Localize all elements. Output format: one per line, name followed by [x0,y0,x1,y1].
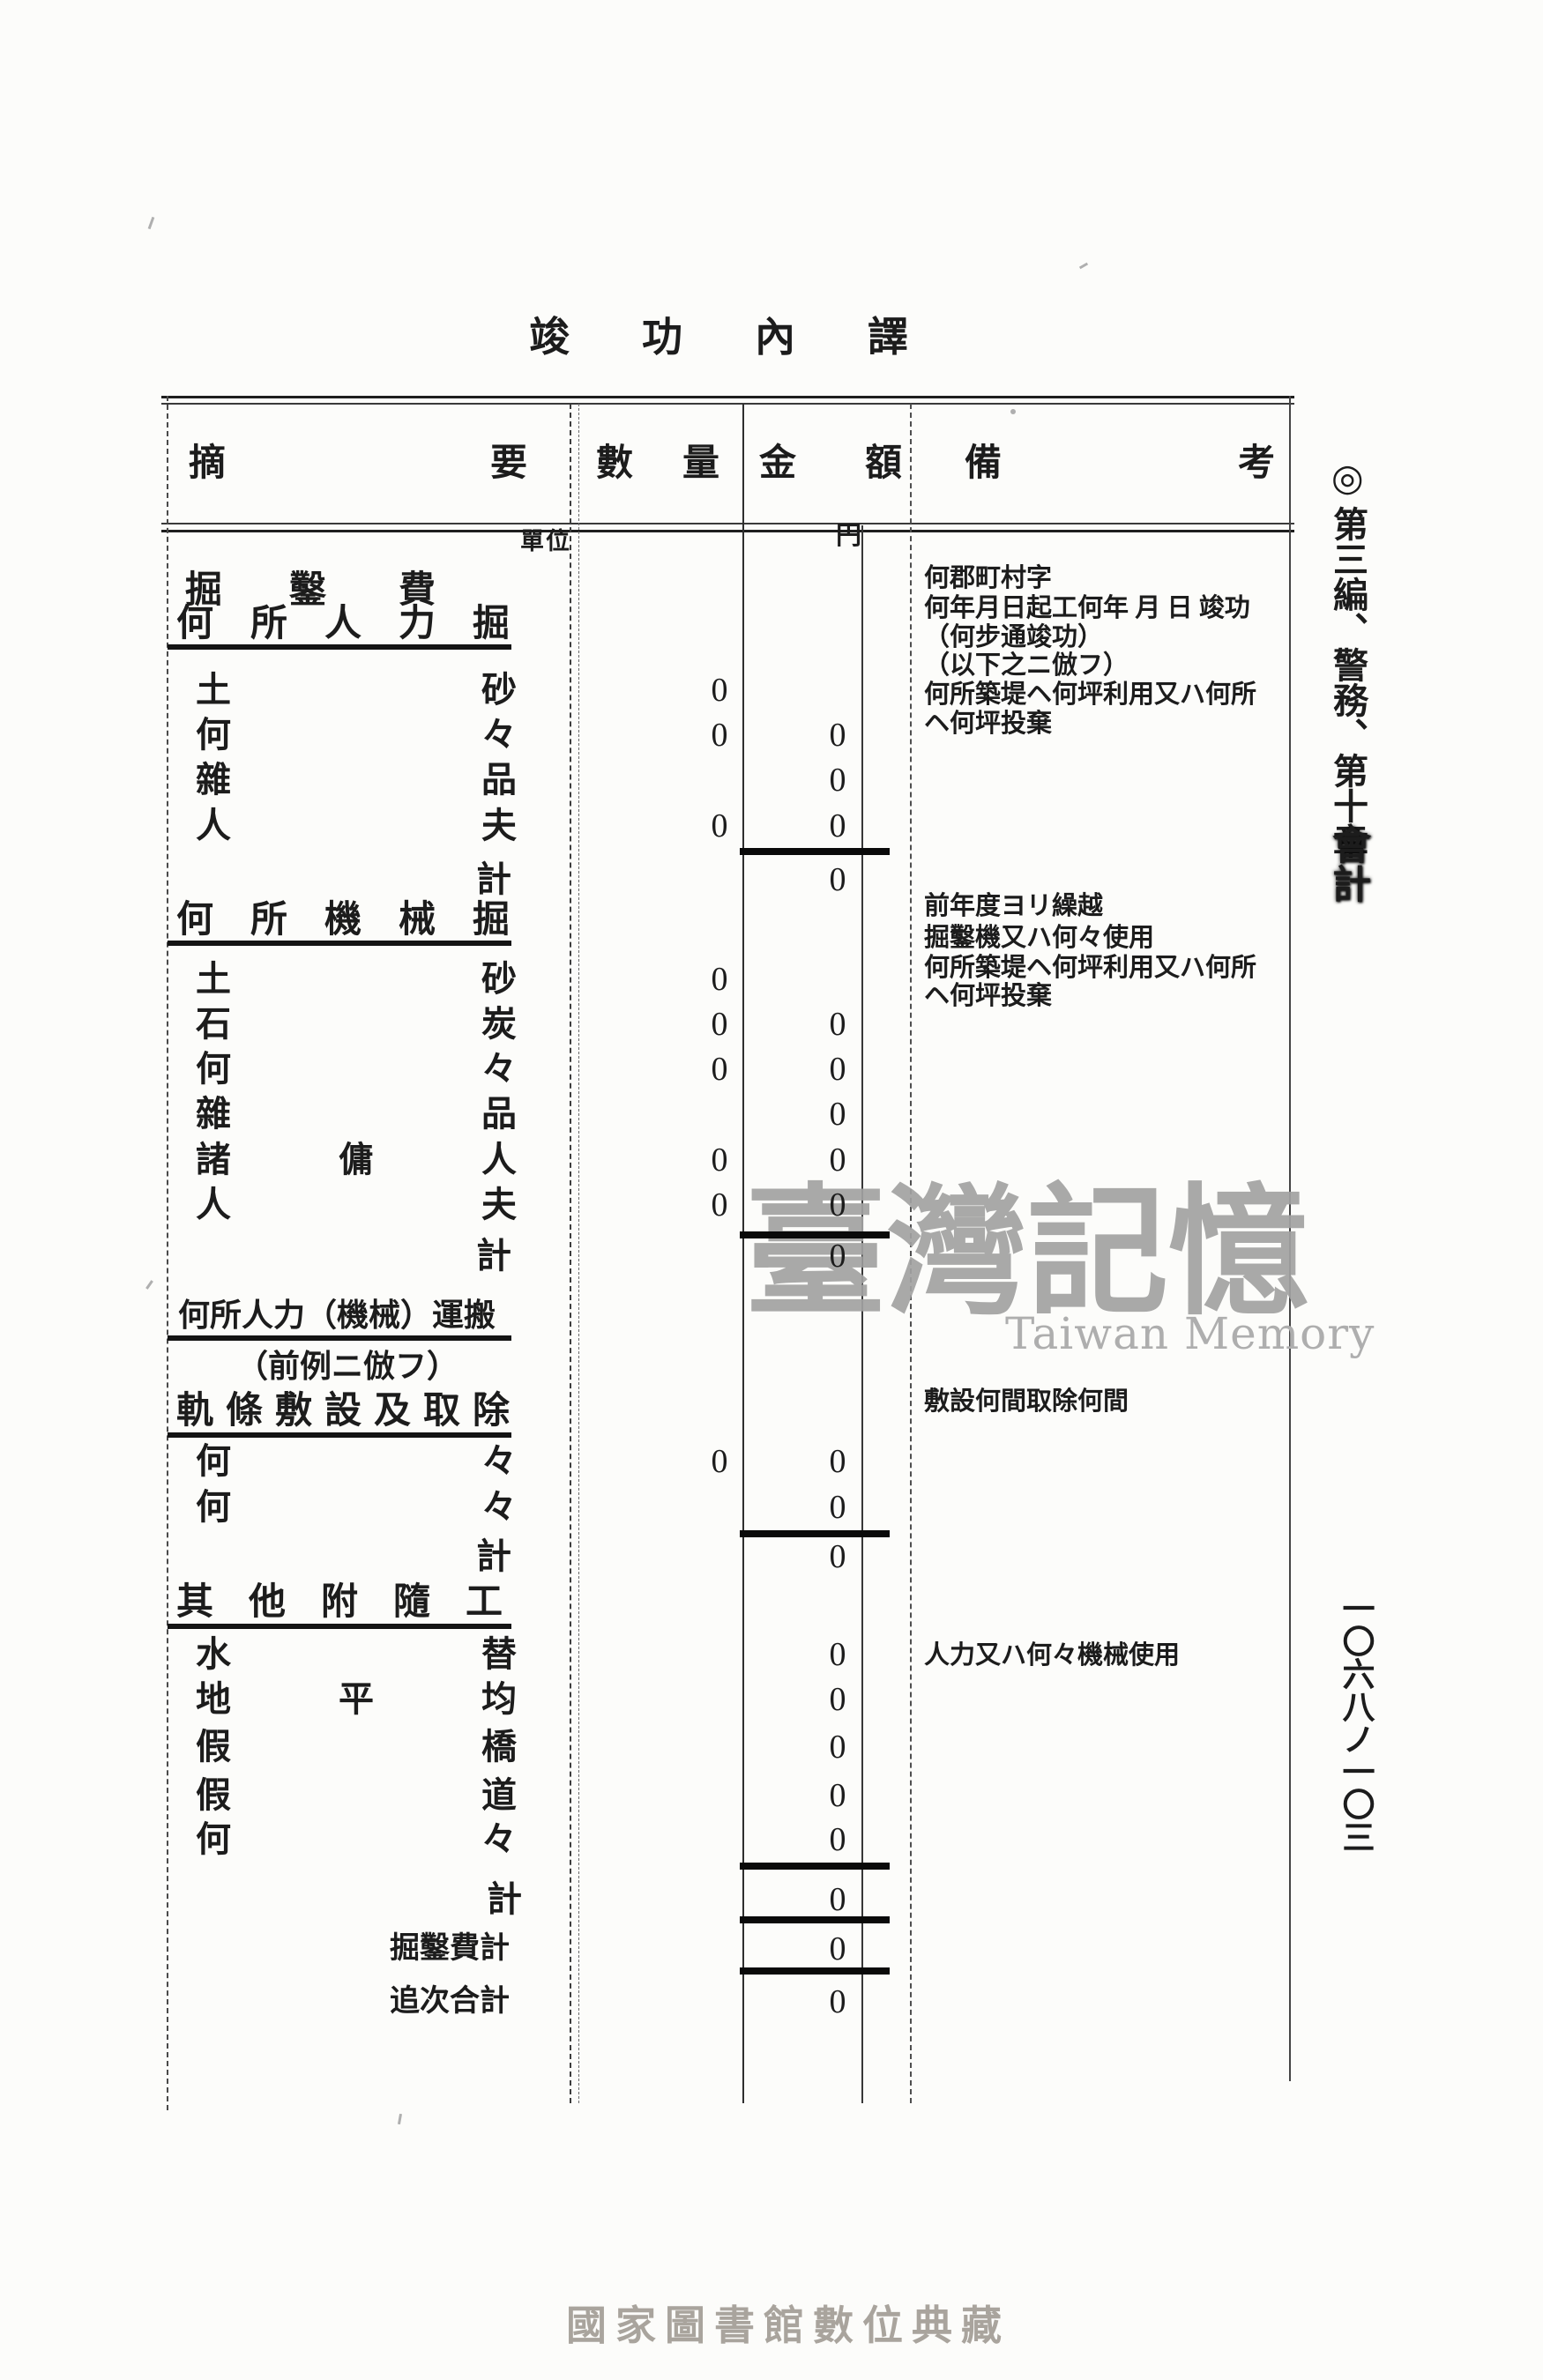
row-label: 假 [196,1729,231,1765]
row-label: 雜 [196,762,231,798]
column-header-amount: 金 額 [759,445,902,482]
amount-value: 0 [823,1008,853,1041]
row-label: 地 [196,1682,231,1717]
amount-value: 0 [823,1883,853,1916]
quantity-value: 0 [704,1143,734,1177]
quantity-value: 0 [704,718,734,752]
column-header-remarks: 備 考 [965,445,1275,482]
remark-line: 人力又ハ何々機械使用 [924,1643,1180,1669]
row-label: 々 [481,718,517,753]
amount-value: 0 [823,1932,853,1966]
row-label: 計 [487,1882,522,1917]
amount-value: 0 [823,1730,853,1764]
remark-line: 何所築堤ヘ何坪利用又ハ何所 [924,682,1256,708]
row-label: 々 [481,1444,517,1479]
quantity-value: 0 [704,963,734,996]
header-bottom-rule-inner [161,523,1294,524]
archive-footer-caption: 國家圖書館數位典藏 [566,2306,1010,2347]
divider-amount-remarks [910,404,912,2103]
subtotal-rule [740,1530,890,1537]
margin-series-text: 第三編、警務、第十章 [1330,506,1365,832]
margin-page-number: 一〇六八ノ一〇三 [1338,1592,1371,1865]
subtotal-rule [740,1863,890,1870]
row-label: 人 [196,808,231,844]
remark-line: 何郡町村字 [924,566,1052,591]
table-right-border [1289,396,1291,2081]
table-top-rule-outer [161,396,1294,398]
row-label: 人 [481,1142,517,1178]
row-label: 石 [196,1007,231,1042]
remark-line: 何年月日起工何年 月 日 竣功 [924,596,1250,621]
quantity-value: 0 [704,1188,734,1222]
section-label: 其 他 附 隨 工 [176,1584,503,1621]
section-underline [168,1624,511,1629]
row-label: 計 [476,1238,511,1274]
watermark-glyph: 灣 [886,1183,1027,1324]
divider-quantity-amount [742,404,744,2103]
amount-value: 0 [823,863,853,896]
amount-value: 0 [823,1823,853,1856]
remark-line: 敷設何間取除何間 [924,1389,1129,1415]
row-label: 夫 [481,1187,517,1223]
amount-value: 0 [823,1985,853,2019]
taiwan-memory-latin-watermark: Taiwan Memory [1005,1312,1375,1356]
watermark-glyph: 記 [1027,1183,1168,1324]
row-label: 橋 [481,1729,517,1765]
amount-value: 0 [823,1540,853,1573]
scan-speck [148,217,155,229]
section-underline [168,941,511,946]
section-label: 軌 條 敷 設 及 取 除 [176,1393,510,1430]
table-top-rule-inner [161,403,1294,405]
header-bottom-rule-outer [161,530,1294,532]
quantity-value: 0 [704,1445,734,1478]
row-label: 道 [481,1778,517,1813]
quantity-value: 0 [704,809,734,843]
amount-value: 0 [823,1052,853,1086]
section-underline [168,644,511,650]
unit-label: 單位 [520,530,571,554]
amount-value: 0 [823,1779,853,1812]
row-label: 人 [196,1187,231,1223]
row-label: 砂 [481,962,517,997]
subtotal-rule [740,848,890,855]
remark-line: 掘鑿機又ハ何々使用 [924,926,1154,951]
row-label: 雜 [196,1097,231,1132]
quantity-value: 0 [704,673,734,707]
amount-value: 0 [823,1683,853,1716]
scanned-document-page: 竣 功 內 譯 摘 要 數 量 金 額 備 考 單位 円 ◎ 第三編、警務、第十… [0,0,1543,2380]
row-label: 諸 [196,1142,231,1178]
row-label: 傭 [339,1142,374,1178]
section-underline [168,1335,511,1341]
row-label: 々 [481,1822,517,1857]
amount-value: 0 [823,1239,853,1273]
row-label: 水 [196,1637,231,1672]
row-label: 何所人力（機械）運搬 [178,1299,496,1331]
amount-value: 0 [823,1097,853,1131]
amount-value: 0 [823,1445,853,1478]
row-label: 何 [196,1444,231,1479]
scan-speck [145,1280,153,1290]
row-label: 何 [196,718,231,753]
remark-line: （何步通竣功） [924,625,1103,651]
remark-line: ヘ何坪投棄 [924,711,1052,737]
subtotal-rule [740,1916,890,1923]
row-label: 品 [481,1097,517,1132]
watermark-glyph: 臺 [745,1183,886,1324]
scan-speck [1010,409,1016,414]
row-label: 假 [196,1778,231,1813]
remark-line: 前年度ヨリ繰越 [924,894,1103,919]
row-label: 土 [196,962,231,997]
row-label: 砂 [481,673,517,708]
row-label: 平 [339,1682,374,1717]
row-label: 炭 [481,1007,517,1042]
quantity-value: 0 [704,1052,734,1086]
subtotal-rule [740,1231,890,1238]
row-label: 何 [196,1822,231,1857]
row-label: 々 [481,1052,517,1087]
subtotal-rule [740,1967,890,1975]
amount-value: 0 [823,718,853,752]
row-label: 夫 [481,808,517,844]
row-label: 均 [481,1682,517,1717]
amount-value: 0 [823,763,853,797]
row-label: 掘鑿費計 [390,1934,510,1964]
amount-value: 0 [823,1188,853,1222]
margin-circle-mark: ◎ [1331,460,1364,497]
scan-speck [1079,263,1088,270]
yen-unit-label: 円 [836,524,861,549]
section-label: 何 所 機 械 掘 [176,902,510,939]
row-label: 追次合計 [390,1987,510,2017]
section-label: 何 所 人 力 掘 [176,606,510,643]
column-header-quantity: 數 量 [596,445,719,482]
table-left-border [167,396,168,2110]
row-label: 計 [476,862,511,897]
amount-value: 0 [823,809,853,843]
divider-summary-quantity [570,404,571,2103]
row-label: 何 [196,1052,231,1087]
scan-speck [398,2114,402,2124]
row-label: 計 [476,1539,511,1574]
remark-line: （以下之ニ倣フ） [924,653,1129,679]
column-header-summary: 摘 要 [189,445,527,482]
row-label: 々 [481,1490,517,1525]
remark-line: ヘ何坪投棄 [924,984,1052,1009]
row-label: 何 [196,1490,231,1525]
margin-account-text: 會計 [1328,825,1367,903]
row-label: 土 [196,673,231,708]
row-label: 替 [481,1637,517,1672]
amount-value: 0 [823,1491,853,1524]
quantity-value: 0 [704,1008,734,1041]
amount-value: 0 [823,1143,853,1177]
section-underline [168,1432,511,1438]
page-title: 竣 功 內 譯 [529,317,908,358]
remark-line: 何所築堤ヘ何坪利用又ハ何所 [924,956,1256,981]
row-label: 品 [481,762,517,798]
divider-summary-quantity-double [578,404,579,2103]
amount-value: 0 [823,1638,853,1671]
row-label: （前例ニ倣フ） [236,1350,458,1382]
